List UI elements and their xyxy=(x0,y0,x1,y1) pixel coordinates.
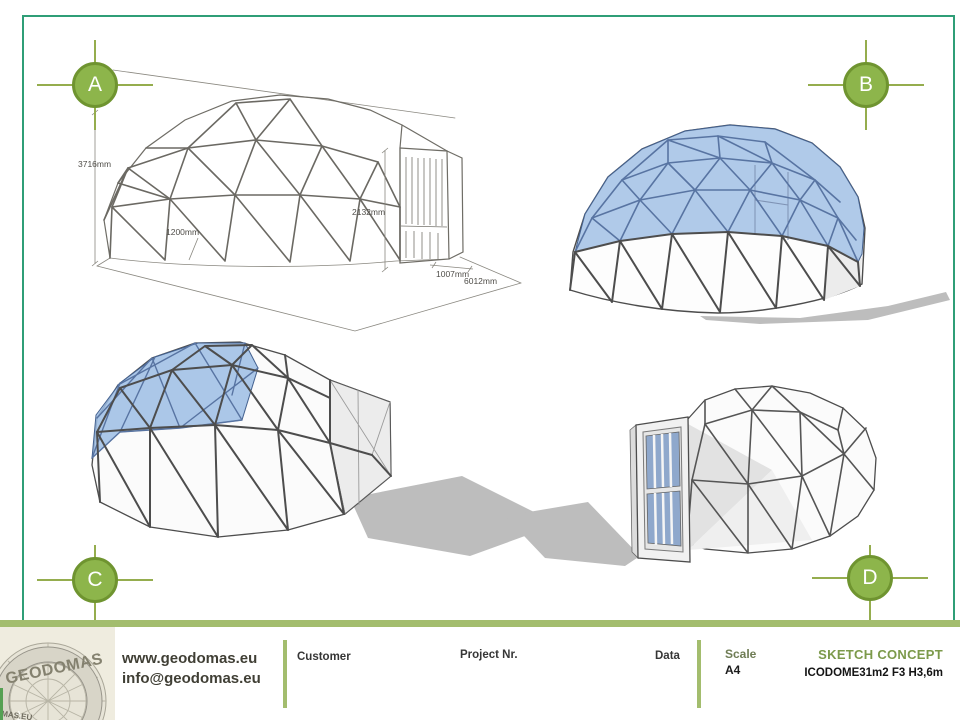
dim-width-label: 6012mm xyxy=(464,276,497,286)
footer-divider-2 xyxy=(697,640,701,708)
geodomas-logo-graphic: GEODOMAS THINK GREEN MAS.EU xyxy=(0,627,115,720)
logo-edge-strip xyxy=(0,688,3,720)
marker-letter: D xyxy=(862,566,877,590)
footer-divider-1 xyxy=(283,640,287,708)
view-d-dome-render xyxy=(495,385,955,585)
marker-circle-c: C xyxy=(72,557,118,603)
dim-door-label: 2132mm xyxy=(352,207,385,217)
project-nr-field-label: Project Nr. xyxy=(460,649,518,661)
marker-letter: A xyxy=(88,73,102,97)
marker-letter: B xyxy=(859,73,873,97)
dome-triangulation xyxy=(104,99,400,262)
dimension-lines xyxy=(92,110,473,272)
view-b-glazed-dome-render xyxy=(545,95,950,330)
marker-circle-d: D xyxy=(847,555,893,601)
scale-value: A4 xyxy=(725,663,740,677)
marker-letter: C xyxy=(87,568,102,592)
website-text: www.geodomas.eu xyxy=(122,649,261,669)
sketch-concept-sheet: 3716mm 1200mm 2132mm 1007mm 6012mm xyxy=(0,0,960,720)
email-text: info@geodomas.eu xyxy=(122,669,261,689)
footer-accent-bar xyxy=(0,620,960,627)
marker-circle-b: B xyxy=(843,62,889,108)
document-title: SKETCH CONCEPT xyxy=(818,647,943,662)
contact-block: www.geodomas.eu info@geodomas.eu xyxy=(122,649,261,689)
company-logo: GEODOMAS THINK GREEN MAS.EU xyxy=(0,627,115,720)
dim-height-label: 3716mm xyxy=(78,159,111,169)
title-block: GEODOMAS THINK GREEN MAS.EU www.geodomas… xyxy=(0,627,960,720)
document-subtitle: ICODOME31m2 F3 H3,6m xyxy=(804,667,943,679)
customer-field-label: Customer xyxy=(297,651,351,663)
view-c-dome-render xyxy=(60,335,565,575)
scale-label: Scale xyxy=(725,647,756,661)
date-field-label: Data xyxy=(655,650,680,662)
dim-inner-label: 1200mm xyxy=(166,227,199,237)
dome-silhouette xyxy=(104,95,463,263)
shadow xyxy=(505,502,640,566)
door-slats xyxy=(401,157,447,260)
marker-circle-a: A xyxy=(72,62,118,108)
